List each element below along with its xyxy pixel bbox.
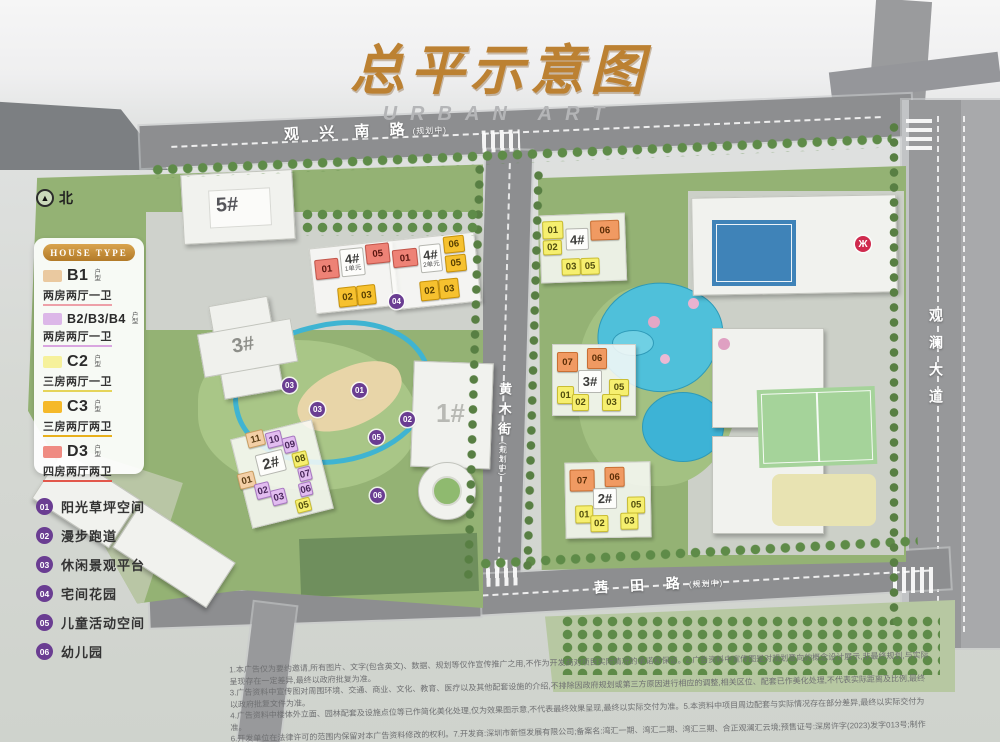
- building-4-unit2: 01 4# 2单元 06 05 02 03: [391, 234, 477, 306]
- unit-block: 01: [314, 258, 340, 280]
- amenity-label: 休闲景观平台: [61, 555, 145, 574]
- house-type-legend: HOUSE TYPE B1 户型 两房两厅一卫 B2/B3/B4 户型 两房两厅…: [34, 238, 144, 474]
- road-note: (规划中): [412, 126, 447, 136]
- legend-item-c3: C3 户型 三房两厅两卫: [34, 392, 144, 437]
- flower-tree: [660, 354, 670, 364]
- house-type-desc: 三房两厅两卫: [43, 418, 112, 437]
- amenity-number-badge: 01: [36, 498, 53, 515]
- building-5-label: 5#: [215, 193, 238, 217]
- unit-block: 03: [438, 278, 460, 300]
- building-4-unit1: 01 4# 1单元 05 02 03: [313, 242, 397, 312]
- house-type-desc: 两房两厅一卫: [43, 287, 112, 306]
- sports-courts: [757, 386, 878, 468]
- amenity-number-badge: 02: [36, 527, 53, 544]
- title-subtitle: URBAN ART: [0, 103, 1000, 126]
- amenity-label: 漫步跑道: [61, 526, 117, 545]
- house-type-code: C2: [67, 353, 88, 371]
- color-swatch: [43, 401, 62, 413]
- amenity-label: 阳光草坪空间: [61, 497, 145, 516]
- list-item: 05 儿童活动空间: [36, 608, 145, 637]
- unit-block: 02: [543, 240, 563, 256]
- unit-block: 06: [604, 467, 624, 487]
- unit-block: 05: [627, 496, 645, 513]
- building-label-text: 4#: [570, 232, 585, 245]
- unit-block: 06: [587, 348, 607, 369]
- amenity-label: 宅间花园: [61, 584, 117, 603]
- basketball-court: [712, 220, 796, 286]
- road-lane-line: [963, 116, 965, 631]
- legend-item-c2: C2 户型 三房两厅一卫: [34, 347, 144, 392]
- legend-header: HOUSE TYPE: [43, 244, 135, 261]
- unit-block: 01: [542, 221, 564, 240]
- poster-title: 总平示意图 URBAN ART: [0, 26, 1000, 126]
- list-item: 01 阳光草坪空间: [36, 492, 145, 521]
- house-type-code: C3: [67, 398, 88, 416]
- road-note: (规划中): [498, 442, 508, 477]
- unit-block: 02: [419, 280, 440, 302]
- color-swatch: [43, 356, 62, 368]
- building-4-u1-label: 4# 1单元: [339, 247, 366, 277]
- unit-block: 07: [569, 469, 594, 491]
- map-badge-lawn: 01: [352, 383, 367, 398]
- unit-block: 05: [580, 257, 600, 275]
- house-type-desc: 三房两厅一卫: [43, 373, 112, 392]
- unit-block: 07: [297, 466, 313, 483]
- kindergarten-roof-garden: [432, 476, 462, 506]
- building-2-right-label: 2#: [593, 488, 617, 509]
- unit-block: 01: [392, 248, 419, 269]
- road-lane-line: [497, 163, 511, 582]
- court-lines: [716, 224, 792, 282]
- building-3-right: 07 06 3# 05 01 02 03: [555, 348, 633, 414]
- unit-block: 02: [572, 394, 589, 411]
- house-type-suffix: 户型: [94, 446, 102, 459]
- unit-block: 05: [365, 242, 391, 264]
- list-item: 02 漫步跑道: [36, 521, 145, 550]
- building-4-u2-label: 4# 2单元: [418, 243, 443, 273]
- map-badge-platform: 03: [310, 402, 325, 417]
- parking-area: [299, 533, 479, 597]
- legend-item-d3: D3 户型 四房两厅两卫: [34, 437, 144, 482]
- building-unit-text: 1单元: [344, 264, 361, 273]
- amenity-number-badge: 03: [36, 556, 53, 573]
- amenity-number-badge: 06: [36, 643, 53, 660]
- road-label-guanlan: 观澜大道: [926, 308, 946, 416]
- road-name: 黄木街: [496, 382, 513, 442]
- unit-block: 03: [620, 512, 638, 529]
- amenity-list: 01 阳光草坪空间 02 漫步跑道 03 休闲景观平台 04 宅间花园 05 儿…: [36, 492, 145, 666]
- building-label-text: 2#: [598, 492, 613, 505]
- building-3-right-label: 3#: [578, 370, 602, 393]
- title-main: 总平示意图: [0, 26, 1000, 105]
- north-label: 北: [59, 188, 73, 208]
- amenity-number-badge: 04: [36, 585, 53, 602]
- house-type-suffix: 户型: [94, 356, 102, 369]
- north-indicator: ▲ 北: [36, 188, 73, 208]
- color-swatch: [43, 270, 62, 282]
- house-type-suffix: 户型: [94, 401, 102, 414]
- flower-tree: [688, 298, 699, 309]
- legend-item-b1: B1 户型 两房两厅一卫: [34, 261, 144, 306]
- list-item: 06 幼儿园: [36, 637, 145, 666]
- house-type-desc: 两房两厅一卫: [43, 328, 112, 347]
- building-2-right: 07 06 2# 05 01 02 03: [567, 464, 648, 535]
- unit-block: 06: [298, 481, 314, 498]
- house-type-code: D3: [67, 443, 88, 461]
- list-item: 04 宅间花园: [36, 579, 145, 608]
- map-badge-children: 05: [369, 430, 384, 445]
- unit-block: 03: [602, 394, 621, 411]
- unit-block: 05: [445, 254, 468, 273]
- color-swatch: [43, 446, 62, 458]
- unit-block: 02: [337, 286, 358, 308]
- house-type-suffix: 户型: [132, 313, 139, 326]
- amenity-label: 儿童活动空间: [61, 613, 145, 632]
- flower-tree: [648, 316, 660, 328]
- building-2-left-label: 2#: [255, 449, 287, 477]
- site-plan-poster: 5# 3# 1# 01 4# 1单元 05 02 03 01 4# 2单元 06…: [0, 0, 1000, 742]
- unit-block: 03: [270, 487, 288, 506]
- tree-row: [300, 208, 480, 236]
- road-note: (规划中): [689, 578, 724, 589]
- flower-tree: [718, 338, 730, 350]
- unit-block: 07: [557, 352, 578, 372]
- house-type-desc: 四房两厅两卫: [43, 463, 112, 482]
- map-badge-kindergarten: 06: [370, 488, 385, 503]
- building-1-label: 1#: [436, 398, 465, 429]
- map-badge-platform: 03: [282, 378, 297, 393]
- unit-block: 03: [561, 258, 581, 276]
- building-label-text: 3#: [583, 375, 597, 388]
- legal-disclaimer: 1.本广告仅为要约邀请,所有图片、文字(包含英文)、数据、规划等仅作宣传推广之用…: [229, 650, 933, 742]
- house-type-code: B1: [67, 267, 88, 285]
- building-label-text: 2#: [261, 455, 280, 472]
- legend-item-b2b3b4: B2/B3/B4 户型 两房两厅一卫: [34, 306, 144, 347]
- unit-block: 06: [443, 235, 466, 254]
- map-badge-garden: 04: [389, 294, 404, 309]
- playground: [772, 474, 876, 526]
- metro-station-icon: Ж: [855, 236, 871, 252]
- building-3-left-label: 3#: [230, 332, 256, 359]
- north-arrow-icon: ▲: [36, 189, 54, 207]
- unit-block: 03: [356, 284, 377, 306]
- unit-block: 11: [245, 429, 266, 449]
- building-4-right-label: 4#: [565, 228, 589, 251]
- unit-block: 05: [295, 497, 313, 514]
- color-swatch: [43, 313, 62, 325]
- amenity-label: 幼儿园: [61, 642, 103, 661]
- list-item: 03 休闲景观平台: [36, 550, 145, 579]
- building-4-right: 01 02 4# 06 03 05: [542, 217, 624, 282]
- house-type-code: B2/B3/B4: [67, 312, 126, 326]
- map-badge-track: 02: [400, 412, 415, 427]
- tree-row: [888, 120, 901, 625]
- unit-block: 02: [590, 515, 608, 532]
- unit-block: 06: [590, 220, 620, 241]
- road-label-huangmu: 黄木街(规划中): [493, 382, 515, 477]
- building-unit-text: 2单元: [423, 260, 440, 269]
- amenity-number-badge: 05: [36, 614, 53, 631]
- road-name: 茜 田 路: [594, 574, 690, 595]
- house-type-suffix: 户型: [94, 270, 102, 283]
